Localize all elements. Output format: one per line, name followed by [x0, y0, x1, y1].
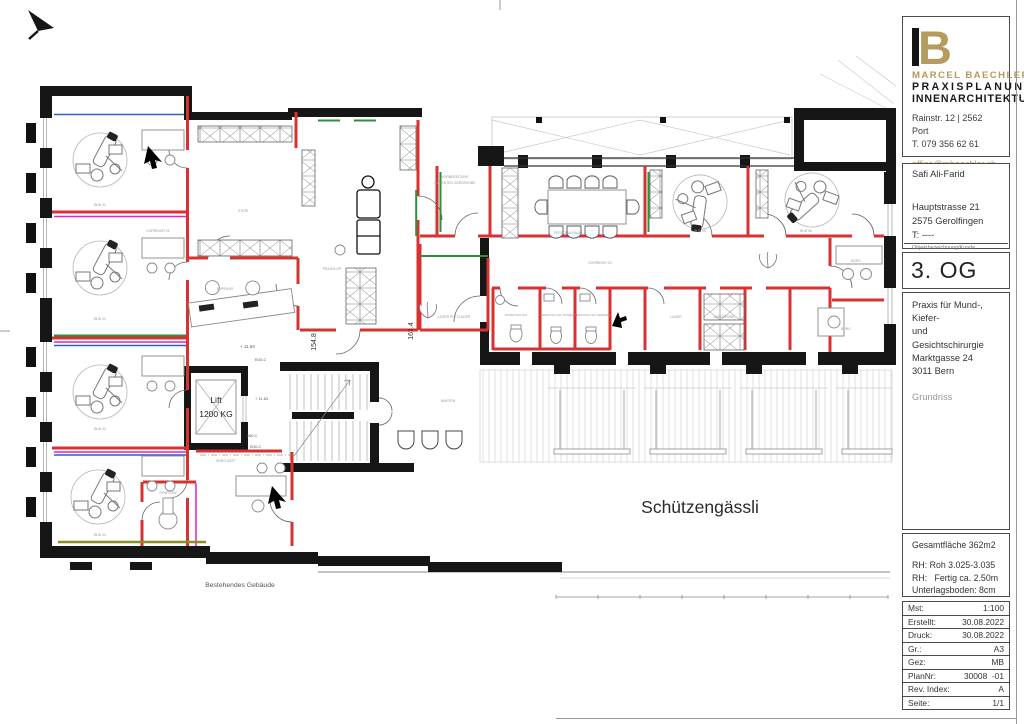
total-area: Gesamtfläche 362m2 — [912, 539, 1001, 551]
room-label: EMPFANG — [217, 287, 234, 291]
row-value: MB — [991, 657, 1004, 667]
table-row: Mst:1:100 — [902, 601, 1010, 616]
room-label: VORBEREITUNG — [441, 175, 468, 179]
floor-designation: 3. OG — [902, 252, 1010, 289]
room-label: STERI — [238, 209, 248, 213]
client-city: 2575 Gerolfingen — [912, 215, 1001, 229]
row-value: 30.08.2022 — [962, 630, 1004, 640]
op-table — [357, 176, 380, 254]
balcony-strip — [480, 370, 892, 462]
room-label: BHD 04 — [94, 533, 106, 537]
exterior-walls — [28, 10, 896, 572]
reception-desk — [186, 270, 295, 327]
title-block-project-box: Praxis für Mund-, Kiefer- und Gesichtsch… — [902, 292, 1010, 530]
drawing-type: Grundriss — [912, 391, 1001, 404]
dimension-label: 161.4 — [408, 322, 415, 340]
lift-capacity-label: 1200 KG — [199, 409, 233, 419]
client-name: Safi Ali-Farid — [912, 169, 1001, 179]
plant-icon — [759, 252, 776, 268]
row-label: PlanNr: — [908, 671, 936, 681]
lift-cab — [196, 380, 236, 434]
room-label: PRAXIS-OP — [323, 267, 342, 271]
room-label: WARTEN — [441, 399, 456, 403]
canopy-skylight — [492, 117, 792, 159]
title-block-logo-box: B MARCEL BAECHLER PRAXISPLANUNG INNENARC… — [902, 16, 1010, 157]
table-row: Seite:1/1 — [902, 696, 1010, 711]
project-line: 3011 Bern — [912, 365, 1001, 378]
row-label: Mst: — [908, 603, 924, 613]
row-value: A — [998, 684, 1004, 694]
room-label: BHD 06 — [800, 229, 812, 233]
row-label: Erstellt: — [908, 617, 936, 627]
fire-rating-label: EI30-C — [255, 358, 267, 362]
plant-icon — [419, 302, 436, 318]
level-mark: + 11.63 — [255, 396, 269, 401]
row-value: 30.08.2022 — [962, 617, 1004, 627]
sheet-frame-right — [1016, 0, 1017, 724]
room-label: BHD 03 — [94, 427, 106, 431]
table-row: Rev. Index:A — [902, 682, 1010, 697]
row-value: 1/1 — [992, 698, 1004, 708]
street-label: Schützengässli — [641, 497, 759, 517]
row-label: Druck: — [908, 630, 932, 640]
new-walls — [52, 96, 884, 546]
project-line: Marktgasse 24 — [912, 352, 1001, 365]
room-height-raw: RH: Roh 3.025-3.035 — [912, 559, 1001, 571]
row-value: A3 — [994, 644, 1004, 654]
logo-b-letter: B — [918, 30, 952, 66]
table-row: PlanNr:30008 -01 — [902, 669, 1010, 684]
title-block-table: Mst:1:100 Erstellt:30.08.2022 Druck:30.0… — [902, 601, 1010, 717]
lift-label: Lift — [210, 395, 222, 405]
client-caption: Objektbezeichnung/Kunde — [904, 243, 1008, 252]
company-address: Rainstr. 12 | 2562 Port — [912, 112, 1001, 138]
fire-rating-label: EI30-C — [250, 445, 262, 449]
room-label: BHD 01 — [94, 203, 106, 207]
brand-line-1: PRAXISPLANUNG — [912, 81, 1001, 93]
room-label: RÖNTGEN — [160, 491, 178, 495]
row-label: Gr.: — [908, 644, 922, 654]
table-row: Erstellt:30.08.2022 — [902, 615, 1010, 630]
room-label: PERSONALRAUM — [554, 231, 583, 235]
row-label: Seite: — [908, 698, 929, 708]
title-block-area-box: Gesamtfläche 362m2 RH: Roh 3.025-3.035 R… — [902, 533, 1010, 597]
client-street: Hauptstrasse 21 — [912, 201, 1001, 215]
room-label: KORRIDOR 03 — [589, 261, 612, 265]
room-label: PATIENTEN WC — [505, 313, 528, 317]
level-mark: + 11.63 — [240, 344, 255, 349]
plan-sheet: Schützengässli Bestehendes Gebäude Lift … — [0, 0, 1024, 724]
existing-building-label: Bestehendes Gebäude — [205, 582, 275, 589]
table-row: Gez:MB — [902, 655, 1010, 670]
room-label: BHD 02 — [94, 317, 106, 321]
room-label: LAGER PUTZLAGER — [438, 315, 471, 319]
room-label: BHD 05 — [694, 229, 706, 233]
brand-name: MARCEL BAECHLER — [912, 70, 1001, 81]
row-value: 30008 -01 — [964, 671, 1004, 681]
room-height-finished: RH: Fertig ca. 2.50m — [912, 572, 1001, 584]
arrow-icon — [612, 312, 627, 328]
company-logo: B — [912, 24, 1001, 66]
floor-plan-drawing: Schützengässli Bestehendes Gebäude Lift … — [0, 0, 900, 724]
room-label: KORRIDOR 01 — [147, 229, 170, 233]
brand-line-2: INNENARCHITEKTUR — [912, 93, 1001, 105]
room-label: BÜRO — [851, 259, 861, 263]
floor-build-up: Unterlagsboden: 8cm — [912, 584, 1001, 596]
north-arrow-icon — [28, 10, 54, 31]
table-row: Druck:30.08.2022 — [902, 628, 1010, 643]
room-label: GARDEROBE — [713, 315, 735, 319]
project-line: und Gesichtschirurgie — [912, 325, 1001, 351]
row-value: 1:100 — [983, 603, 1004, 613]
room-label: BÜRO ARZT — [216, 459, 235, 463]
fire-rating-label: E60-C — [247, 434, 258, 438]
project-line: Praxis für Mund-, Kiefer- — [912, 299, 1001, 325]
room-label: LAGER — [670, 315, 682, 319]
client-phone: T: ---- — [912, 229, 1001, 243]
sheet-frame-bottom — [556, 718, 1017, 719]
dimension-label: 154.8 — [311, 333, 318, 351]
row-label: Gez: — [908, 657, 926, 667]
room-label: PATIENTEN GARDEROBE — [434, 181, 476, 185]
room-label: PERSONAL WC HERREN — [574, 313, 610, 317]
table-row: Gr.:A3 — [902, 642, 1010, 657]
company-phone: T. 079 356 62 61 — [912, 138, 1001, 151]
room-label: BÜRO — [841, 327, 851, 331]
title-block-client-box: Safi Ali-Farid Hauptstrasse 21 2575 Gero… — [902, 163, 1010, 249]
room-label: PERSONAL WC DAMEN — [540, 313, 574, 317]
row-label: Rev. Index: — [908, 684, 950, 694]
